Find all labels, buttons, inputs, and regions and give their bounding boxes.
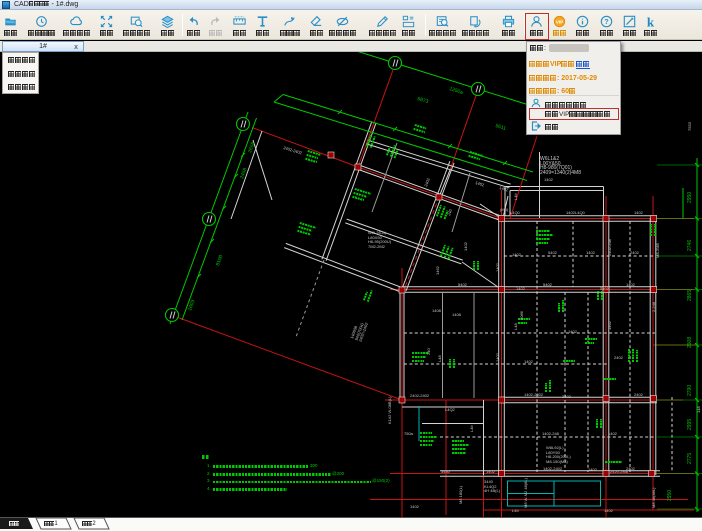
svg-text:k: k <box>647 15 655 28</box>
svg-text:VIP: VIP <box>556 19 564 24</box>
svg-text:?: ? <box>605 17 610 26</box>
